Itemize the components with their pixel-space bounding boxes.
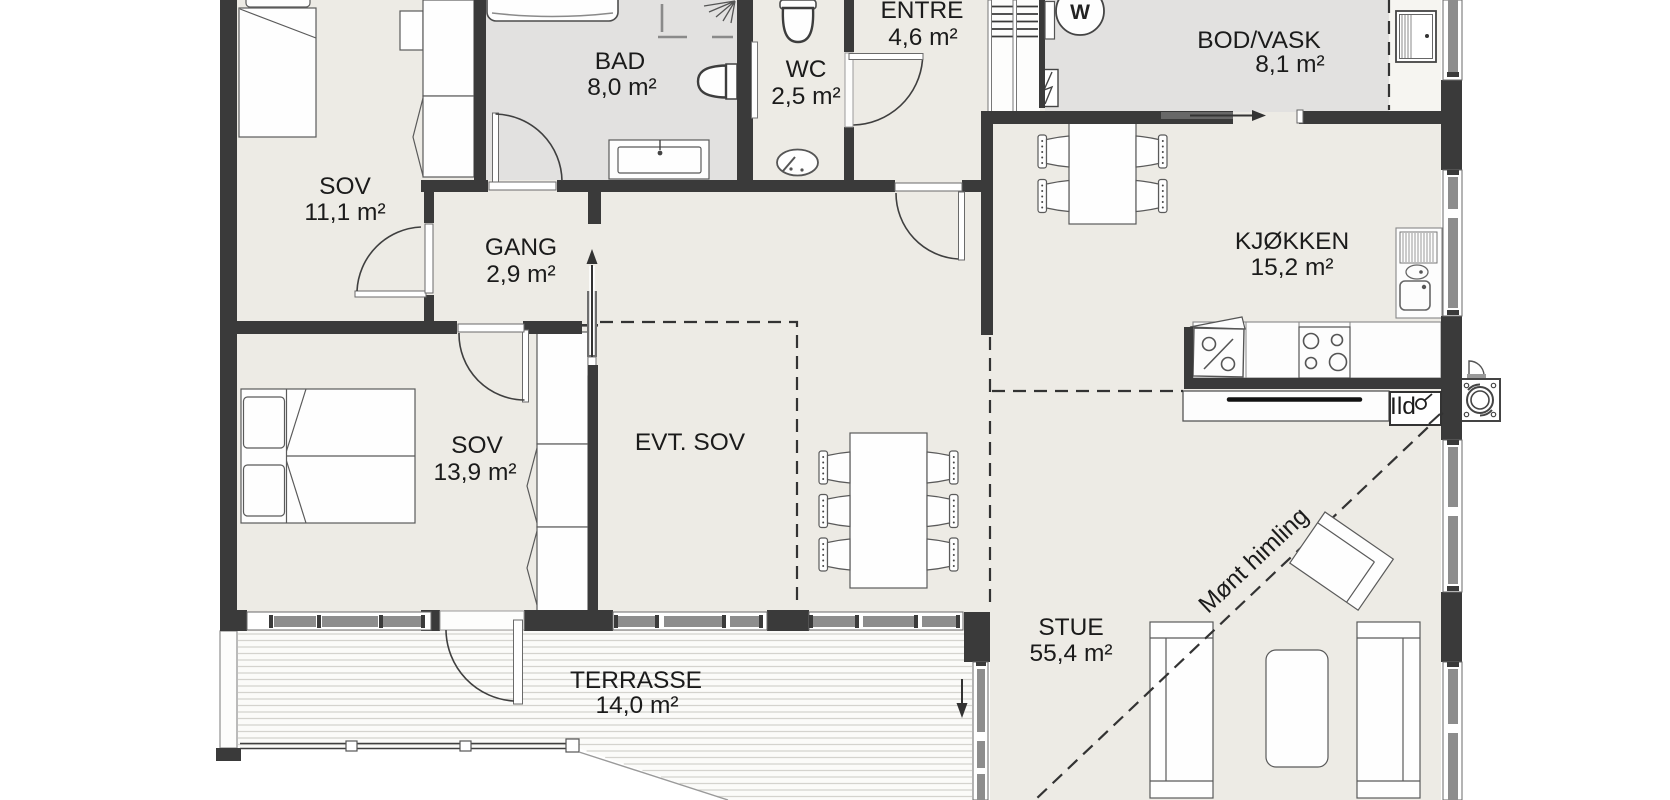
svg-text:Ild: Ild bbox=[1390, 393, 1416, 420]
svg-text:14,0 m²: 14,0 m² bbox=[595, 692, 678, 719]
svg-text:13,9 m²: 13,9 m² bbox=[433, 459, 516, 486]
svg-text:BOD/VASK: BOD/VASK bbox=[1197, 27, 1321, 54]
svg-text:8,1 m²: 8,1 m² bbox=[1255, 51, 1324, 78]
svg-text:SOV: SOV bbox=[319, 173, 371, 200]
svg-text:TERRASSE: TERRASSE bbox=[570, 667, 702, 694]
svg-text:ENTRE: ENTRE bbox=[880, 0, 963, 24]
svg-text:55,4 m²: 55,4 m² bbox=[1029, 640, 1112, 667]
svg-text:EVT. SOV: EVT. SOV bbox=[635, 429, 746, 456]
svg-text:2,9 m²: 2,9 m² bbox=[486, 261, 555, 288]
svg-text:4,6 m²: 4,6 m² bbox=[888, 24, 957, 51]
svg-text:GANG: GANG bbox=[485, 234, 557, 261]
svg-text:BAD: BAD bbox=[595, 48, 645, 75]
svg-text:11,1 m²: 11,1 m² bbox=[304, 199, 385, 226]
svg-text:W: W bbox=[1070, 1, 1090, 24]
svg-text:KJØKKEN: KJØKKEN bbox=[1235, 228, 1349, 255]
svg-text:WC: WC bbox=[786, 56, 827, 83]
svg-text:2,5 m²: 2,5 m² bbox=[771, 83, 840, 110]
svg-text:15,2 m²: 15,2 m² bbox=[1250, 254, 1333, 281]
svg-text:8,0 m²: 8,0 m² bbox=[587, 74, 656, 101]
svg-text:SOV: SOV bbox=[451, 432, 503, 459]
svg-text:STUE: STUE bbox=[1038, 614, 1103, 641]
